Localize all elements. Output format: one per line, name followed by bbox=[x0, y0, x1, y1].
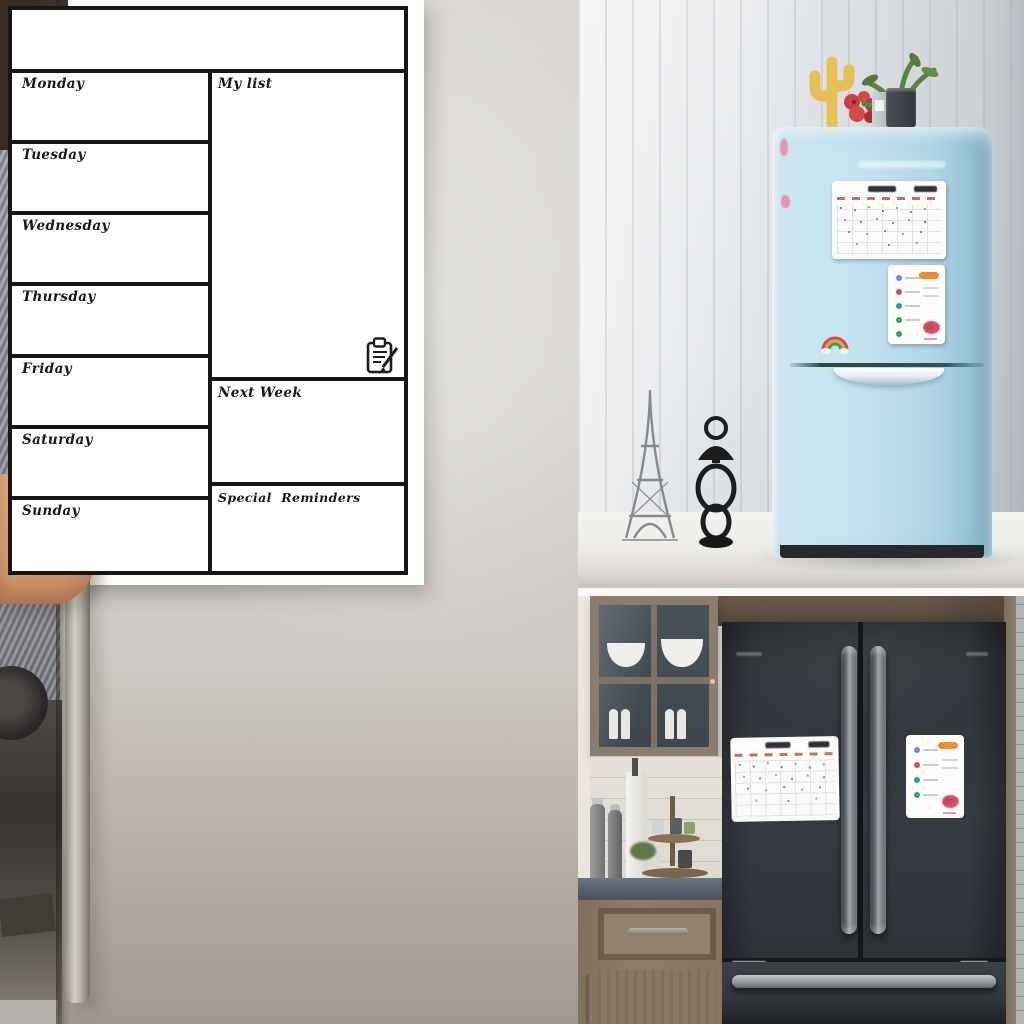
dark-french-door-fridge bbox=[722, 622, 1006, 1024]
white-fridge-door-scene: Monday Tuesday Wednesday Thursday Friday… bbox=[0, 0, 578, 1024]
spice-jar bbox=[670, 818, 682, 834]
calendar-weekday-row bbox=[837, 197, 942, 200]
planner-frame: Monday Tuesday Wednesday Thursday Friday… bbox=[8, 6, 408, 575]
lower-cabinet bbox=[578, 900, 724, 1024]
pink-squiggle bbox=[924, 338, 937, 340]
chart-dot bbox=[914, 762, 920, 768]
chore-chart-magnet bbox=[888, 265, 945, 344]
planner-line bbox=[208, 377, 404, 381]
right-cabinet-column bbox=[1004, 596, 1024, 1024]
planner-line bbox=[12, 354, 208, 358]
planner-section-next-week: Next Week bbox=[218, 385, 302, 401]
clipboard-pencil-icon bbox=[364, 336, 400, 376]
floor-sliver bbox=[0, 1000, 58, 1024]
calendar-magnet bbox=[832, 181, 946, 259]
planner-day-label-sunday: Sunday bbox=[22, 503, 80, 519]
cabinet-mullion bbox=[599, 677, 709, 684]
chart-dash bbox=[942, 767, 958, 769]
chart-dot bbox=[914, 777, 920, 783]
herb-sprig bbox=[630, 842, 656, 860]
planner-day-label-wednesday: Wednesday bbox=[22, 218, 110, 234]
calendar-magnet-dark-fridge bbox=[730, 736, 839, 822]
calendar-month-blur bbox=[868, 186, 895, 192]
person-lower-body bbox=[0, 700, 62, 1024]
side-tile-strip bbox=[1016, 596, 1024, 1024]
planner-day-label-saturday: Saturday bbox=[22, 432, 93, 448]
fridge-brand-emboss bbox=[858, 161, 946, 168]
chart-dot bbox=[896, 289, 902, 295]
chart-dash bbox=[923, 794, 938, 796]
cabinet-mullion bbox=[651, 605, 657, 747]
planner-line bbox=[12, 425, 208, 429]
blue-fridge-pocket-handle bbox=[834, 368, 944, 385]
white-plate bbox=[665, 709, 674, 739]
calendar-month-blur bbox=[765, 742, 791, 748]
calendar-numbers-speckle bbox=[739, 764, 741, 766]
pink-squiggle bbox=[943, 812, 956, 814]
chart-dash bbox=[905, 277, 920, 279]
vase-tag bbox=[875, 100, 884, 111]
calendar-grid bbox=[735, 759, 835, 817]
planner-section-special-reminders: Special Reminders bbox=[218, 490, 361, 505]
chart-dash bbox=[923, 749, 938, 751]
dark-countertop bbox=[578, 878, 724, 900]
spice-jar bbox=[684, 822, 695, 834]
bottle-pump bbox=[632, 758, 638, 776]
chart-dash bbox=[923, 287, 939, 289]
chart-dot bbox=[896, 317, 902, 323]
cabinet-door-handle bbox=[586, 974, 592, 1024]
white-bottle bbox=[626, 772, 647, 882]
planner-day-label-tuesday: Tuesday bbox=[22, 147, 86, 163]
white-plate bbox=[609, 709, 618, 739]
tier-stand-bottom bbox=[642, 868, 708, 878]
rainbow-sticker bbox=[820, 330, 850, 354]
freezer-drawer bbox=[722, 962, 1006, 1024]
chart-dash bbox=[942, 759, 958, 761]
door-split-line bbox=[790, 363, 984, 367]
chart-dot bbox=[896, 303, 902, 309]
chart-dash bbox=[923, 295, 939, 297]
cabinet-drawer bbox=[598, 908, 716, 960]
photo-divider bbox=[578, 588, 1024, 596]
planner-line bbox=[208, 482, 404, 486]
calendar-year-blur bbox=[914, 186, 937, 192]
tier-stand-top bbox=[648, 834, 700, 843]
lantern-decor bbox=[684, 412, 748, 552]
door-gap bbox=[858, 622, 863, 958]
calendar-year-blur bbox=[808, 741, 830, 747]
cabinet-door bbox=[598, 970, 716, 1024]
drawer-bar-handle bbox=[628, 928, 688, 935]
chore-chart-magnet-dark-fridge bbox=[906, 735, 964, 818]
dark-vase bbox=[886, 88, 916, 127]
chart-dot bbox=[914, 747, 920, 753]
planner-line bbox=[12, 140, 208, 144]
chart-dot bbox=[914, 792, 920, 798]
spice-jar bbox=[652, 820, 664, 834]
chart-dot bbox=[896, 331, 902, 337]
planner-line bbox=[12, 496, 208, 500]
salt-grinder bbox=[608, 810, 622, 882]
white-plate bbox=[677, 709, 686, 739]
orange-pill bbox=[938, 742, 958, 749]
fridge-logo-right bbox=[966, 652, 988, 656]
calendar-weekday-row bbox=[735, 752, 834, 757]
cabinet-knob bbox=[710, 679, 715, 684]
blue-fridge-base bbox=[780, 545, 984, 558]
pink-sticker bbox=[780, 139, 788, 156]
fridge-handle-left bbox=[841, 646, 857, 934]
white-plate bbox=[621, 709, 630, 739]
planner-line bbox=[12, 211, 208, 215]
chart-dash bbox=[923, 779, 938, 781]
planner-day-label-thursday: Thursday bbox=[22, 289, 96, 305]
red-blob bbox=[942, 795, 959, 808]
dark-fridge-kitchen-scene bbox=[578, 596, 1024, 1024]
glass-door-cabinet bbox=[590, 596, 718, 756]
chart-dash bbox=[905, 305, 920, 307]
planner-line bbox=[208, 69, 212, 571]
planner-section-my-list: My list bbox=[218, 76, 272, 92]
orange-pill bbox=[919, 272, 939, 279]
planner-day-label-monday: Monday bbox=[22, 76, 84, 92]
calendar-grid bbox=[837, 204, 942, 254]
chart-dash bbox=[905, 319, 920, 321]
calendar-numbers-speckle bbox=[840, 207, 842, 209]
pink-sticker bbox=[781, 195, 790, 208]
planner-day-label-friday: Friday bbox=[22, 361, 72, 377]
chart-dot bbox=[896, 275, 902, 281]
freezer-drawer-handle bbox=[732, 975, 996, 988]
chart-dash bbox=[905, 291, 920, 293]
blue-fridge bbox=[772, 127, 992, 558]
spice-jar bbox=[678, 850, 692, 868]
pepper-grinder bbox=[590, 804, 605, 882]
weekly-planner-board: Monday Tuesday Wednesday Thursday Friday… bbox=[0, 0, 424, 585]
product-photo-collage: Monday Tuesday Wednesday Thursday Friday… bbox=[0, 0, 1024, 1024]
blue-fridge-scene bbox=[578, 0, 1024, 588]
chart-dash bbox=[923, 764, 938, 766]
planner-line bbox=[12, 282, 208, 286]
red-blob bbox=[923, 321, 940, 334]
eiffel-tower-decor bbox=[620, 386, 680, 548]
fridge-handle-right bbox=[870, 646, 886, 934]
dark-bracket bbox=[0, 893, 56, 937]
fridge-logo-left bbox=[736, 652, 762, 656]
